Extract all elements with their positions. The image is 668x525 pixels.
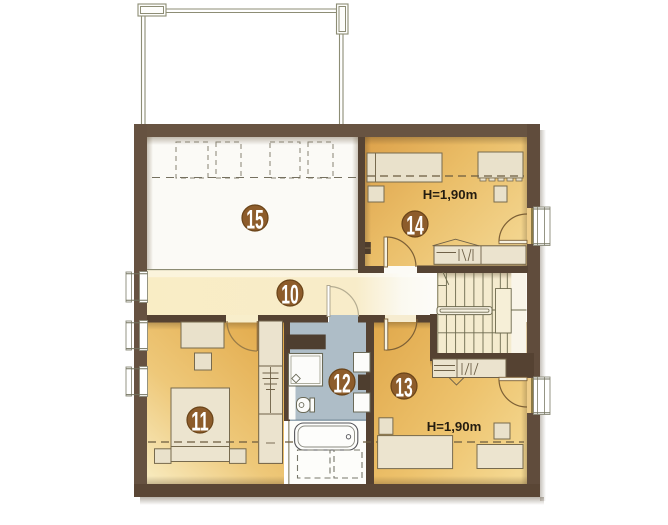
svg-text:10: 10 bbox=[281, 280, 299, 310]
svg-text:H=1,90m: H=1,90m bbox=[423, 187, 478, 202]
svg-text:H=1,90m: H=1,90m bbox=[427, 419, 482, 434]
svg-text:15: 15 bbox=[246, 205, 264, 235]
svg-text:11: 11 bbox=[191, 407, 209, 437]
svg-text:14: 14 bbox=[406, 211, 424, 241]
svg-text:13: 13 bbox=[395, 373, 413, 403]
svg-text:12: 12 bbox=[333, 369, 351, 399]
